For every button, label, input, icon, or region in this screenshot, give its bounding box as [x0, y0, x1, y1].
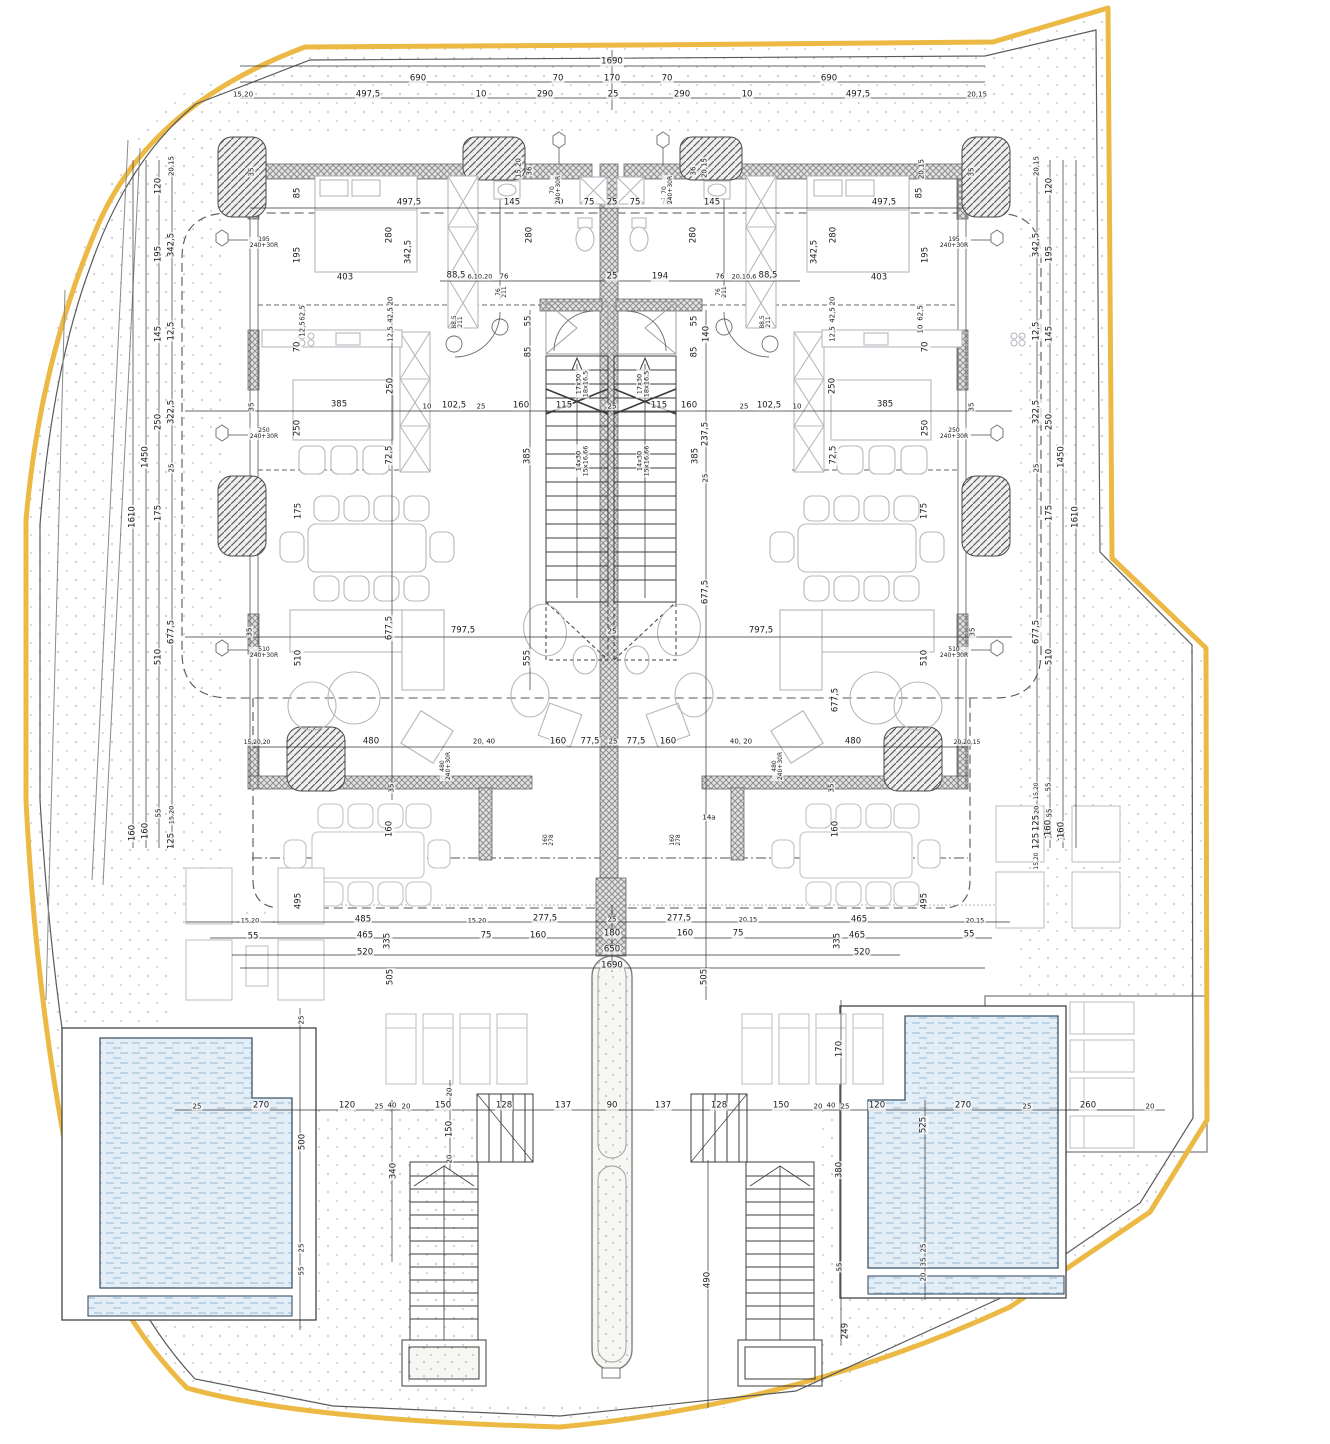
kitchen-table-left: [293, 380, 393, 474]
tall-unit-left: [400, 332, 430, 472]
bed-right: [807, 176, 909, 272]
kitchen-counter-left: [262, 330, 402, 347]
plan-drawing: [0, 0, 1330, 1444]
bed-left: [315, 176, 417, 272]
wardrobe-left: [448, 176, 478, 328]
pool-left: [62, 1028, 316, 1320]
kitchen-table-right: [831, 380, 931, 474]
floor-plan-canvas: 1690690701707069015,20497,51029025290104…: [0, 0, 1330, 1444]
central-walkway: [592, 956, 632, 1378]
wardrobe-right: [746, 176, 776, 328]
tall-unit-right: [794, 332, 824, 472]
